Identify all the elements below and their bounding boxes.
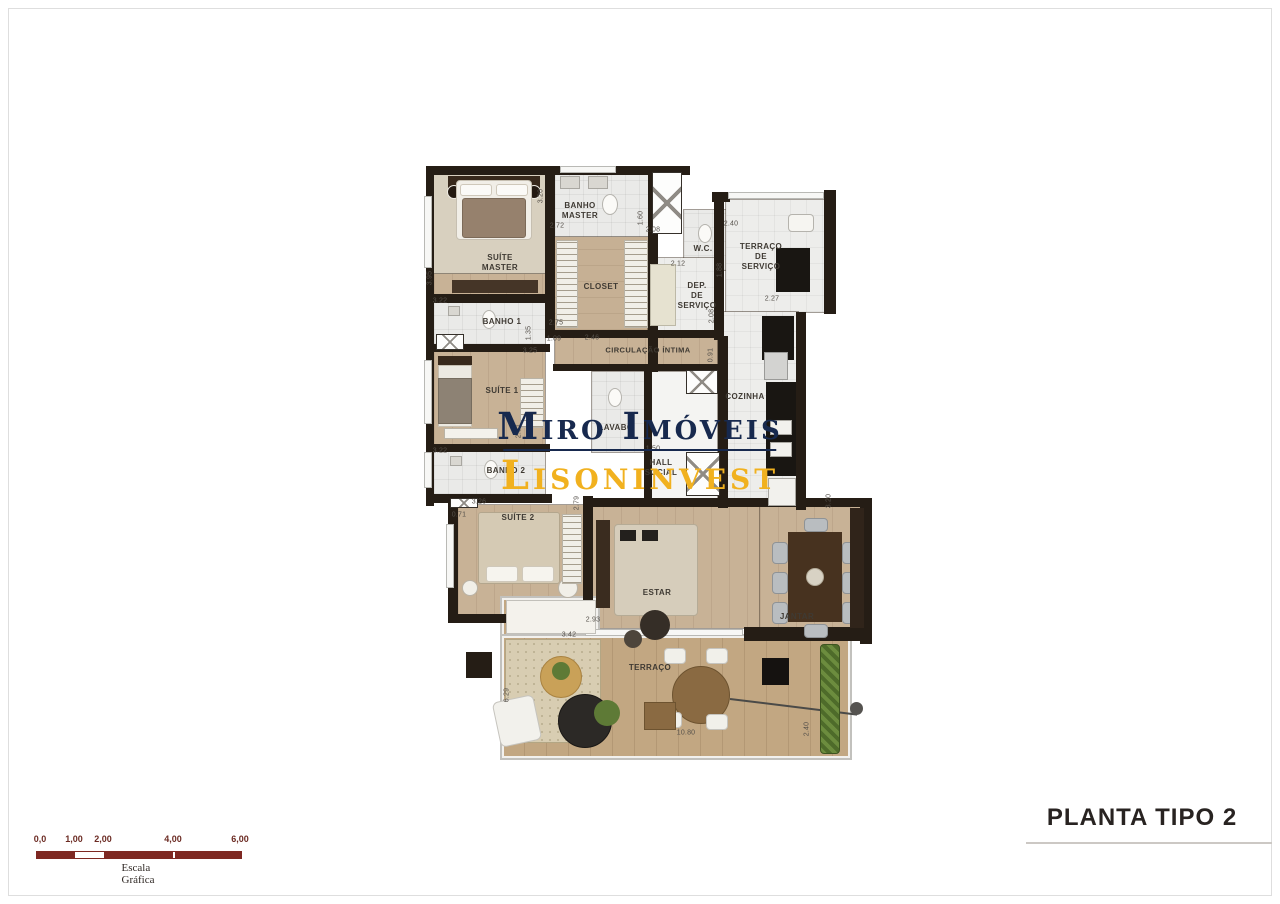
dining-chair-2 <box>772 572 788 594</box>
dimension-label-14: 0.91 <box>708 348 715 362</box>
daybed <box>506 600 596 634</box>
suite1-bed-headboard <box>438 356 472 365</box>
sofa-cushion-1 <box>620 530 636 541</box>
arc-lamp-base <box>850 702 863 715</box>
window-3 <box>446 524 454 588</box>
kitchen-fridge <box>768 478 796 506</box>
wall-4 <box>545 170 555 338</box>
dimension-label-8: 2.27 <box>765 296 779 303</box>
wall-7 <box>796 312 806 510</box>
page: SUÍTE MASTERBANHO 1SUÍTE 1BANHO 2SUÍTE 2… <box>0 0 1280 904</box>
shaft-icon-1 <box>436 334 464 350</box>
dimension-label-28: 2.40 <box>804 722 811 736</box>
room-label-cozinha: COZINHA <box>725 392 764 402</box>
wall-18 <box>644 370 652 500</box>
terrace-chair-1 <box>664 648 686 664</box>
dimension-label-3: 2.72 <box>550 223 564 230</box>
window-1 <box>424 360 432 424</box>
dimension-label-25: 2.93 <box>586 617 600 624</box>
sofa-cushion-2 <box>642 530 658 541</box>
master-bed-blanket <box>462 198 526 238</box>
dimension-label-24: 3.42 <box>562 632 576 639</box>
dimension-label-9: 2.12 <box>671 261 685 268</box>
terrace-plant <box>594 700 620 726</box>
master-dresser <box>452 280 538 293</box>
dimension-label-27: 10.80 <box>677 730 696 737</box>
room-lavabo <box>592 372 646 452</box>
firepit <box>762 658 789 685</box>
scale-tick-4: 6,00 <box>231 834 249 844</box>
suite1-wardrobe <box>520 378 544 428</box>
scale-bar-segment-tick <box>173 852 175 858</box>
banho-master-sink-2 <box>588 176 608 189</box>
suite2-pillow-1 <box>486 566 518 582</box>
dimension-label-7: 1.88 <box>717 263 724 277</box>
room-label-hall-social: HALL SOCIAL <box>645 458 678 478</box>
dimension-label-23: 3.20 <box>826 494 833 508</box>
window-0 <box>424 196 432 268</box>
banho-master-sink-1 <box>560 176 580 189</box>
kitchen-stove <box>764 352 788 380</box>
shaft-icon-3 <box>686 370 718 394</box>
lavabo-toilet <box>608 388 622 407</box>
dimension-label-26: 6.29 <box>504 688 511 702</box>
room-label-banho-2: BANHO 2 <box>487 466 526 476</box>
banho2-sink <box>450 456 462 466</box>
window-2 <box>424 452 432 488</box>
suite2-wardrobe <box>562 514 582 584</box>
room-label-banho-master: BANHO MASTER <box>562 201 598 221</box>
floor-plan: SUÍTE MASTERBANHO 1SUÍTE 1BANHO 2SUÍTE 2… <box>0 0 1280 904</box>
scale-bar-strip <box>36 851 242 859</box>
sideboard <box>850 508 864 628</box>
dimension-label-17: 2.91 <box>516 424 523 438</box>
room-label-lavabo: LAVABO <box>599 423 634 433</box>
closet-wardrobe-left <box>556 240 578 328</box>
dining-chair-top <box>804 518 828 532</box>
dimension-label-10: 2.08 <box>709 309 716 323</box>
dimension-label-2: 3.22 <box>433 298 447 305</box>
room-label-suite-master: SUÍTE MASTER <box>482 253 518 273</box>
tanque <box>788 214 814 232</box>
scale-tick-0: 0,0 <box>34 834 47 844</box>
wall-19 <box>466 652 492 678</box>
dimension-label-21: 0.71 <box>452 512 466 519</box>
room-label-dep-servico: DEP. DE SERVIÇO <box>678 281 717 311</box>
window-5 <box>560 166 616 173</box>
room-label-terraco-servico: TERRAÇO DE SERVIÇO <box>740 242 782 272</box>
dimension-label-18: 3.22 <box>433 448 447 455</box>
dimension-label-20: 2.79 <box>574 496 581 510</box>
title-block: PLANTA TIPO 2 <box>1012 804 1272 844</box>
hedge <box>820 644 840 754</box>
kitchen-sink-2 <box>770 442 792 457</box>
dep-servico-bed <box>650 264 676 326</box>
scale-bar-caption: Escala Gráfica <box>122 862 155 886</box>
dimension-label-22: 1.50 <box>646 446 660 453</box>
banho-master-toilet <box>602 194 618 215</box>
room-label-estar: ESTAR <box>643 588 672 598</box>
room-label-terraco: TERRAÇO <box>629 663 671 673</box>
room-label-jantar: JANTAR <box>780 612 814 622</box>
wc-toilet <box>698 224 712 243</box>
dining-centerpiece <box>806 568 824 586</box>
dimension-label-11: 2.75 <box>549 320 563 327</box>
banho1-sink <box>448 306 460 316</box>
room-label-suite-1: SUÍTE 1 <box>485 386 518 396</box>
plan-title: PLANTA TIPO 2 <box>1012 804 1272 832</box>
terrace-pouf-plant <box>552 662 570 680</box>
suite2-pillow-2 <box>522 566 554 582</box>
suite1-bed-blanket <box>438 378 472 424</box>
shaft-icon-0 <box>652 172 682 234</box>
title-rule <box>1026 842 1272 844</box>
scale-tick-3: 4,00 <box>164 834 182 844</box>
dimension-label-6: 2.40 <box>724 221 738 228</box>
dimension-label-15: 1.35 <box>526 326 533 340</box>
dimension-label-19: 3.26 <box>472 499 486 506</box>
dimension-label-12: 1.09 <box>547 336 561 343</box>
dimension-label-4: 1.60 <box>638 211 645 225</box>
scale-tick-2: 2,00 <box>94 834 112 844</box>
dimension-label-0: 3.20 <box>538 189 545 203</box>
room-label-closet: CLOSET <box>584 282 619 292</box>
terrace-crate <box>644 702 676 730</box>
wall-13 <box>428 494 552 503</box>
scale-bar-segment <box>75 852 104 858</box>
kitchen-sink-1 <box>770 420 792 435</box>
coffee-table-2 <box>624 630 642 648</box>
coffee-table-1 <box>640 610 670 640</box>
scale-tick-1: 1,00 <box>65 834 83 844</box>
terrace-chair-4 <box>706 714 728 730</box>
dimension-label-1: 3.95 <box>427 271 434 285</box>
suite2-side-table-left <box>462 580 478 596</box>
room-label-circulacao-intima: CIRCULAÇÃO ÍNTIMA <box>605 345 690 354</box>
master-pillow-1 <box>460 184 492 196</box>
master-pillow-2 <box>496 184 528 196</box>
terrace-chair-2 <box>706 648 728 664</box>
tv-panel <box>596 520 610 608</box>
dimension-label-5: 2.08 <box>646 227 660 234</box>
wall-2 <box>824 190 836 314</box>
window-4 <box>728 192 824 199</box>
closet-wardrobe-right <box>624 240 648 328</box>
shaft-icon-4 <box>686 452 720 496</box>
room-label-wc: W.C. <box>694 244 713 254</box>
room-label-suite-2: SUÍTE 2 <box>501 513 534 523</box>
dimension-label-13: 2.46 <box>585 335 599 342</box>
room-label-banho-1: BANHO 1 <box>483 317 522 327</box>
dining-chair-1 <box>772 542 788 564</box>
dimension-label-16: 3.25 <box>523 348 537 355</box>
wall-14 <box>548 330 722 338</box>
suite1-dresser <box>444 428 498 439</box>
dining-chair-bottom <box>804 624 828 638</box>
